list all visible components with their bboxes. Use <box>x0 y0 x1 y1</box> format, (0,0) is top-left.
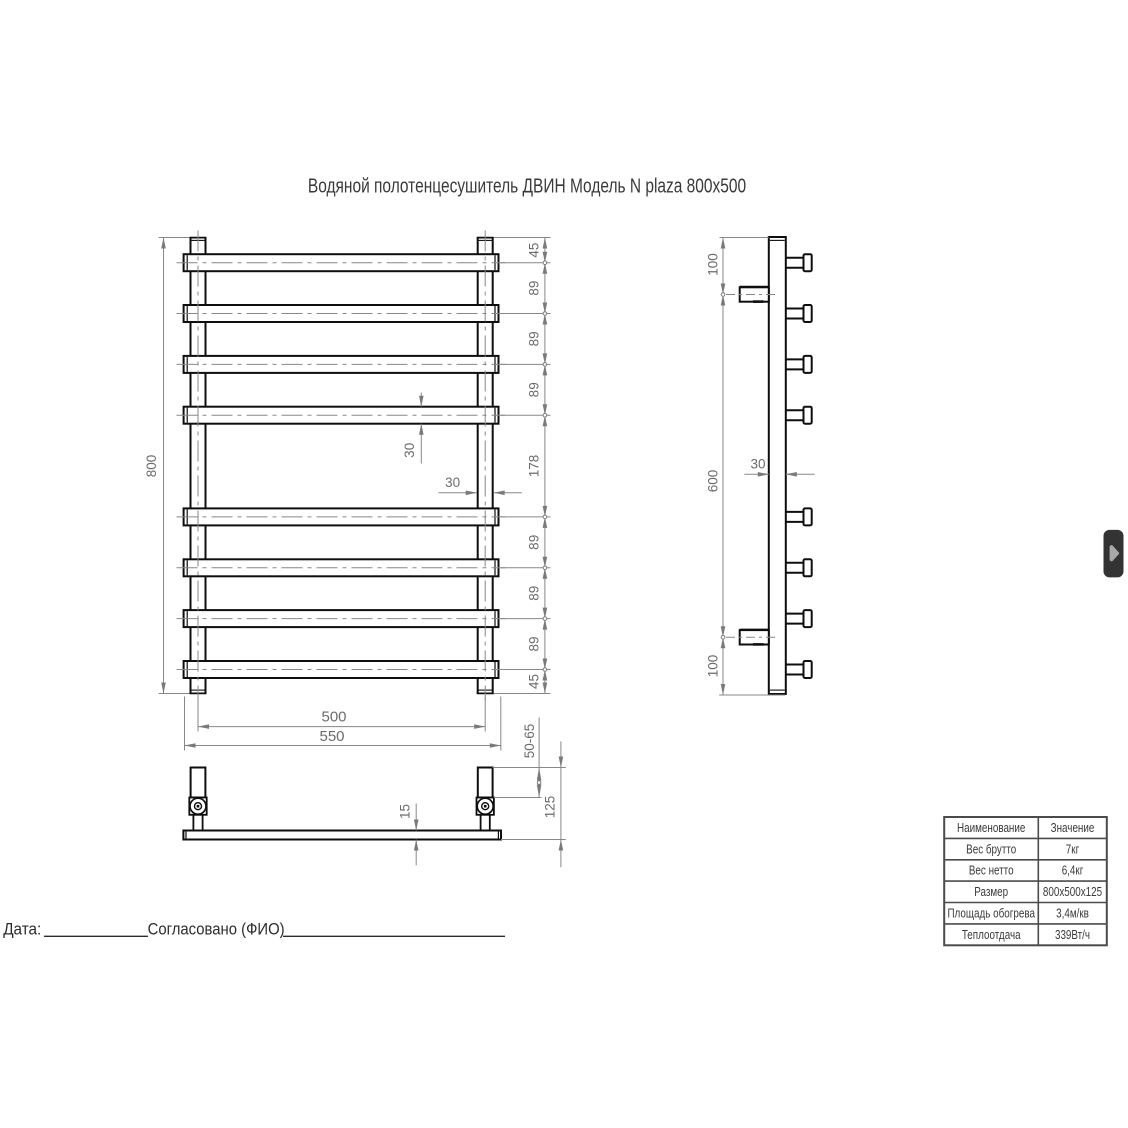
svg-text:600: 600 <box>706 470 721 493</box>
svg-text:Согласовано (ФИО): Согласовано (ФИО) <box>148 921 285 939</box>
svg-text:Размер: Размер <box>974 886 1008 899</box>
svg-text:Площадь обогрева: Площадь обогрева <box>947 907 1035 920</box>
svg-text:3,4м/кв: 3,4м/кв <box>1056 907 1089 920</box>
svg-text:800х500х125: 800х500х125 <box>1043 886 1102 899</box>
svg-text:339Вт/ч: 339Вт/ч <box>1055 929 1090 942</box>
svg-text:89: 89 <box>527 535 542 550</box>
svg-text:178: 178 <box>527 455 542 478</box>
svg-text:7кг: 7кг <box>1066 843 1079 856</box>
svg-text:45: 45 <box>527 243 542 258</box>
svg-text:Вес брутто: Вес брутто <box>966 843 1016 856</box>
svg-text:89: 89 <box>527 586 542 601</box>
svg-text:100: 100 <box>706 253 721 276</box>
svg-text:15: 15 <box>398 804 413 819</box>
svg-text:89: 89 <box>527 636 542 651</box>
svg-text:30: 30 <box>750 456 765 471</box>
svg-text:30: 30 <box>445 475 460 490</box>
svg-text:500: 500 <box>321 709 346 726</box>
svg-text:Наименование: Наименование <box>957 822 1025 835</box>
svg-text:100: 100 <box>706 655 721 678</box>
svg-text:6,4кг: 6,4кг <box>1062 865 1084 878</box>
svg-text:89: 89 <box>527 382 542 397</box>
svg-text:Вес нетто: Вес нетто <box>969 865 1014 878</box>
svg-text:800: 800 <box>144 455 159 478</box>
svg-text:89: 89 <box>527 331 542 346</box>
svg-text:125: 125 <box>543 796 558 819</box>
svg-text:Значение: Значение <box>1051 822 1095 835</box>
svg-text:45: 45 <box>527 674 542 689</box>
svg-text:50-65: 50-65 <box>522 724 537 759</box>
svg-text:89: 89 <box>527 281 542 296</box>
svg-text:Водяной полотенцесушитель ДВИН: Водяной полотенцесушитель ДВИН Модель N … <box>308 175 746 197</box>
svg-text:Теплоотдача: Теплоотдача <box>962 929 1021 942</box>
svg-text:Дата:: Дата: <box>3 920 41 939</box>
svg-text:30: 30 <box>402 443 417 458</box>
svg-text:550: 550 <box>319 728 344 745</box>
